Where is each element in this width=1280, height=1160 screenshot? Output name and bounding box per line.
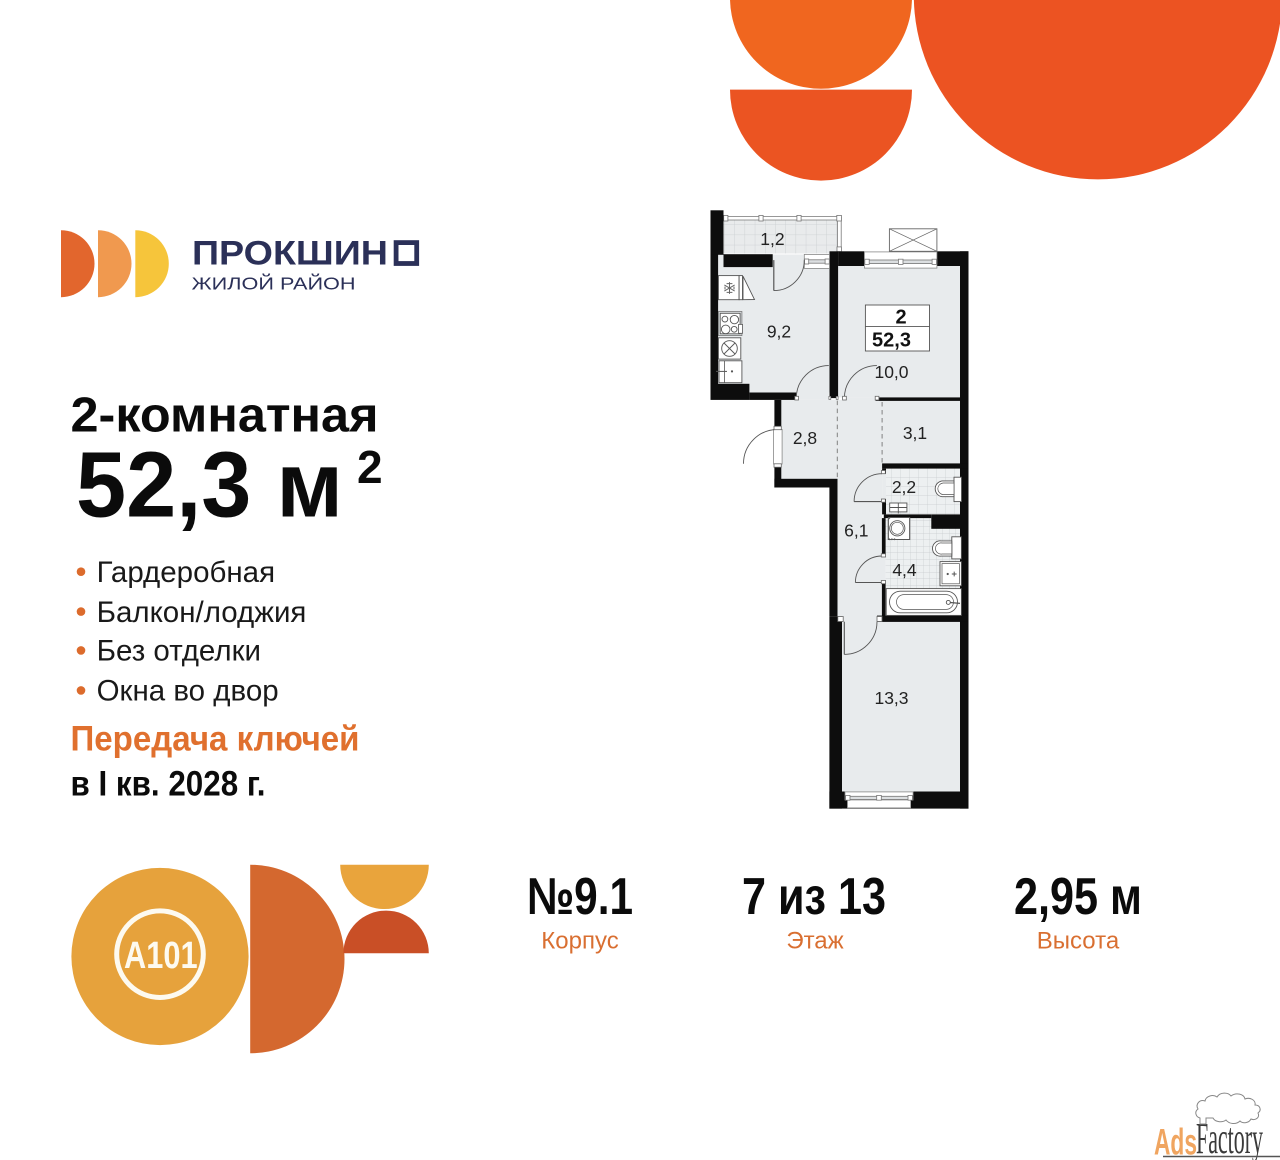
svg-text:2: 2: [895, 306, 906, 328]
svg-text:9,2: 9,2: [767, 322, 791, 342]
svg-text:7 из 13: 7 из 13: [742, 868, 886, 926]
svg-text:№9.1: №9.1: [527, 868, 633, 926]
svg-text:10,0: 10,0: [874, 362, 908, 382]
svg-text:4,4: 4,4: [892, 560, 917, 580]
svg-text:ЖИЛОЙ РАЙОН: ЖИЛОЙ РАЙОН: [192, 273, 356, 294]
svg-text:2: 2: [357, 441, 383, 493]
svg-text:Этаж: Этаж: [786, 928, 843, 955]
svg-text:Балкон/лоджия: Балкон/лоджия: [97, 596, 307, 629]
svg-text:A101: A101: [124, 935, 198, 977]
svg-text:в I кв. 2028 г.: в I кв. 2028 г.: [71, 765, 266, 804]
svg-text:2,8: 2,8: [793, 428, 817, 448]
svg-text:3,1: 3,1: [903, 423, 927, 443]
svg-text:Передача ключей: Передача ключей: [71, 720, 360, 759]
svg-text:2,95 м: 2,95 м: [1014, 868, 1142, 926]
svg-text:52,3: 52,3: [872, 330, 911, 352]
svg-text:1,2: 1,2: [760, 229, 784, 249]
svg-text:2,2: 2,2: [892, 477, 916, 497]
svg-text:Окна во двор: Окна во двор: [97, 675, 279, 708]
svg-text:ПРОКШИН: ПРОКШИН: [192, 235, 388, 273]
svg-text:Корпус: Корпус: [541, 928, 618, 955]
svg-text:Высота: Высота: [1037, 928, 1120, 955]
svg-text:Без отделки: Без отделки: [97, 635, 261, 668]
svg-text:Гардеробная: Гардеробная: [97, 556, 275, 589]
svg-text:Ads: Ads: [1154, 1122, 1197, 1160]
svg-text:6,1: 6,1: [844, 521, 868, 541]
svg-text:13,3: 13,3: [874, 688, 908, 708]
svg-text:52,3 м: 52,3 м: [76, 433, 343, 537]
